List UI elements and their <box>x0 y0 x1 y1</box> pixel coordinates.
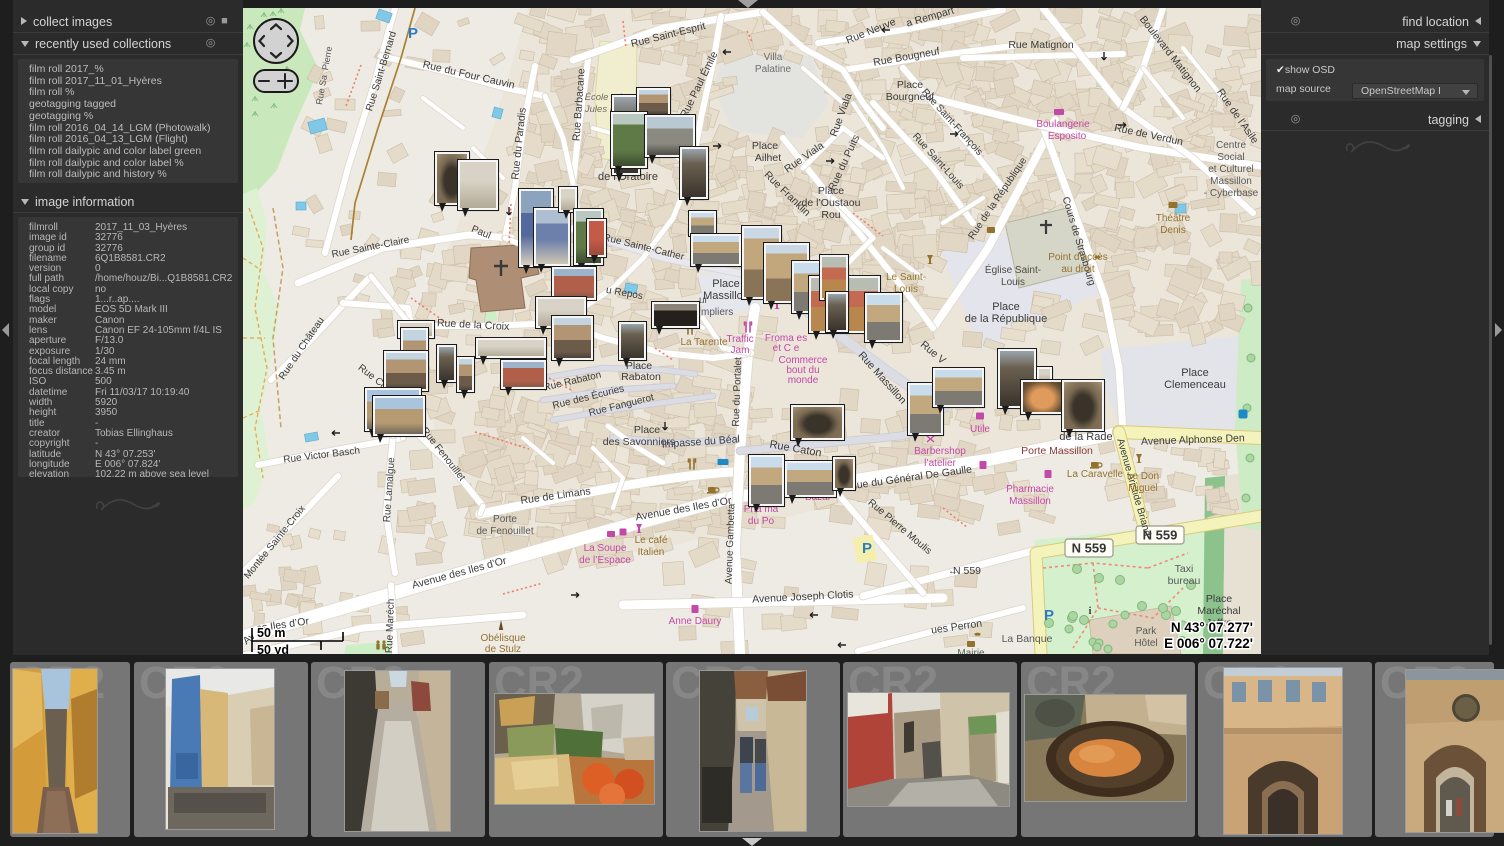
svg-text:Traffic: Traffic <box>726 334 753 345</box>
svg-text:Place: Place <box>1181 367 1209 379</box>
svg-text:Place: Place <box>818 185 844 197</box>
svg-text:de Fenouillet: de Fenouillet <box>476 526 533 537</box>
svg-text:Porte: Porte <box>493 514 517 525</box>
svg-text:Villa: Villa <box>764 52 783 63</box>
svg-text:bureau: bureau <box>1168 575 1201 587</box>
svg-text:ur: ur <box>699 295 709 306</box>
svg-text:Italien: Italien <box>638 547 665 558</box>
svg-text:de Stulz: de Stulz <box>485 644 521 654</box>
svg-text:Social: Social <box>1217 152 1244 163</box>
svg-text:La Banque: La Banque <box>1002 633 1053 645</box>
svg-text:E 006° 07.722': E 006° 07.722' <box>1164 636 1253 651</box>
svg-text:Denis: Denis <box>1160 225 1186 236</box>
svg-text:La Soupe: La Soupe <box>584 543 627 554</box>
svg-text:Place: Place <box>992 301 1020 313</box>
svg-text:Park: Park <box>1136 626 1158 637</box>
svg-text:N 559: N 559 <box>1072 541 1107 556</box>
svg-text:Le Saint-: Le Saint- <box>886 272 926 283</box>
svg-text:La Tarente: La Tarente <box>680 337 728 348</box>
svg-text:Miguel: Miguel <box>1128 483 1157 494</box>
svg-text:l’atelier: l’atelier <box>924 458 956 469</box>
svg-text:P: P <box>862 540 872 557</box>
svg-text:Porte Massillon: Porte Massillon <box>1021 445 1093 457</box>
svg-text:Église Saint-: Église Saint- <box>985 263 1041 276</box>
svg-text:de l’Oustaou: de l’Oustaou <box>802 197 861 209</box>
svg-text:Esposito: Esposito <box>1048 131 1087 142</box>
svg-text:Pharmacie: Pharmacie <box>1006 484 1054 495</box>
svg-text:Maréchal: Maréchal <box>1197 605 1240 617</box>
svg-text:et C e: et C e <box>773 343 800 354</box>
svg-text:Place: Place <box>897 79 923 91</box>
svg-text:Clemenceau: Clemenceau <box>1164 379 1226 391</box>
svg-text:i: i <box>1089 606 1092 617</box>
svg-text:Utile: Utile <box>970 424 990 435</box>
svg-text:Boulangerie: Boulangerie <box>1036 119 1090 130</box>
svg-text:du Po: du Po <box>748 516 775 527</box>
svg-text:Rue Maréch: Rue Maréch <box>384 599 397 654</box>
svg-text:de la République: de la République <box>965 313 1048 325</box>
svg-text:Centre: Centre <box>1216 140 1246 151</box>
svg-text:Rabaton: Rabaton <box>621 371 661 383</box>
svg-text:monde: monde <box>788 375 819 386</box>
svg-text:Place: Place <box>752 140 778 152</box>
svg-text:Place: Place <box>712 278 740 290</box>
svg-text:au droit: au droit <box>1061 264 1095 275</box>
svg-text:50 m: 50 m <box>257 626 286 640</box>
svg-text:Taxi: Taxi <box>1175 563 1194 575</box>
svg-text:Hôtel: Hôtel <box>1134 638 1157 649</box>
svg-text:Le Don: Le Don <box>1127 471 1159 482</box>
svg-text:et Culturel: et Culturel <box>1208 164 1254 175</box>
svg-text:La Caravelle: La Caravelle <box>1067 469 1124 480</box>
svg-text:Le café: Le café <box>635 535 668 546</box>
svg-text:Place: Place <box>1206 593 1232 605</box>
svg-text:Anne Daury: Anne Daury <box>669 616 722 627</box>
svg-text:Place: Place <box>634 424 660 436</box>
svg-text:N 43° 07.277': N 43° 07.277' <box>1171 620 1253 635</box>
svg-text:Louis: Louis <box>1001 277 1025 288</box>
svg-text:Jam: Jam <box>731 345 750 356</box>
svg-text:Massillon: Massillon <box>1009 496 1051 507</box>
svg-text:Massillon: Massillon <box>1210 176 1252 187</box>
svg-text:Rue Matignon: Rue Matignon <box>1008 39 1074 51</box>
svg-text:Théâtre: Théâtre <box>1156 213 1191 224</box>
svg-text:←: ← <box>948 566 958 577</box>
svg-text:Obélisque: Obélisque <box>480 633 525 644</box>
svg-text:P: P <box>1044 607 1054 624</box>
svg-text:Barbershop: Barbershop <box>914 446 966 457</box>
svg-text:mpliers: mpliers <box>701 307 733 318</box>
svg-text:Palatine: Palatine <box>755 64 792 75</box>
svg-text:- Cyberbase: - Cyberbase <box>1204 188 1259 199</box>
svg-text:de l’Espace: de l’Espace <box>579 555 631 566</box>
svg-text:50 yd: 50 yd <box>257 643 289 654</box>
svg-text:Ailhet: Ailhet <box>755 152 781 164</box>
svg-text:Mairie: Mairie <box>957 648 985 654</box>
svg-text:P: P <box>408 25 418 42</box>
svg-text:Rou: Rou <box>821 209 840 221</box>
